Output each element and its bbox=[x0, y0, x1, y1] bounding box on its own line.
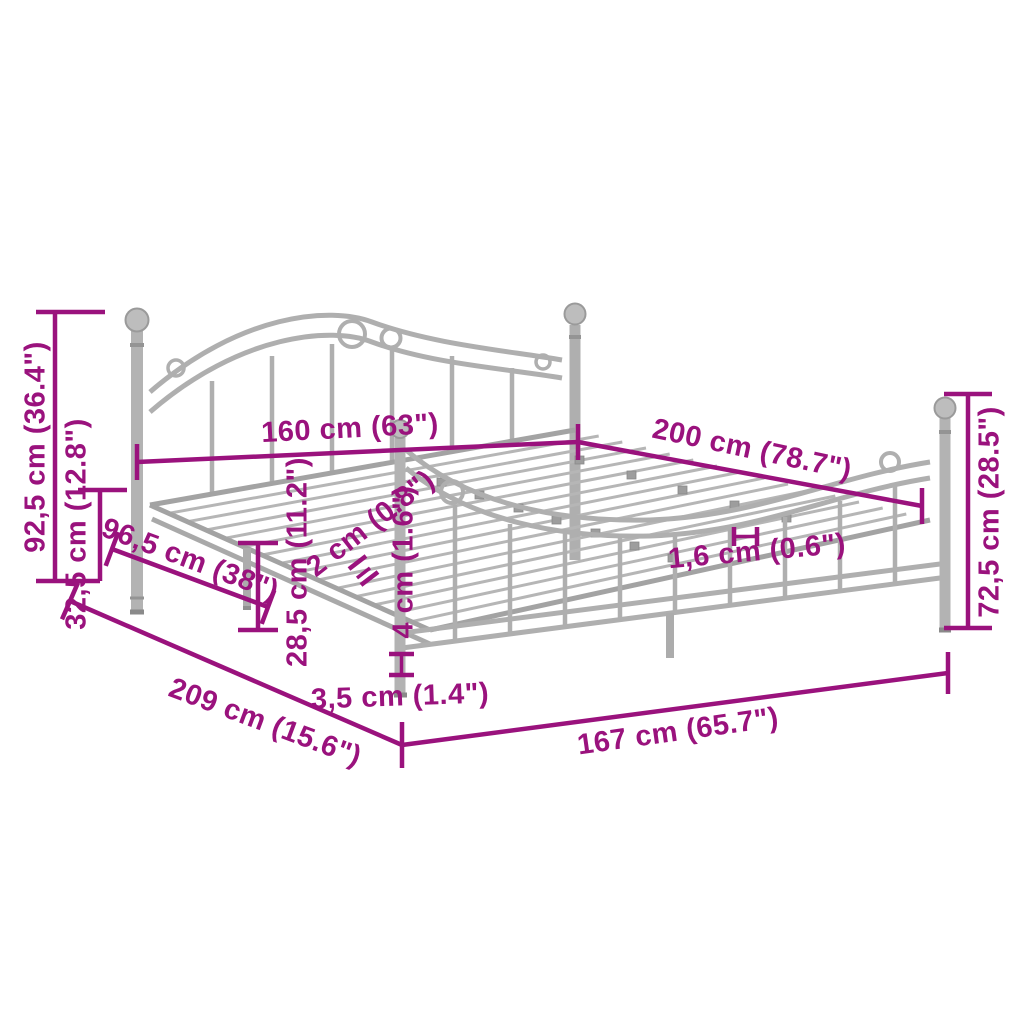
dimension-label-total-height: 92,5 cm (36.4") bbox=[20, 341, 53, 552]
dimension-label-base-height: 32,5 cm (12.8") bbox=[61, 418, 94, 629]
footboard-far-post bbox=[935, 398, 956, 631]
dimension-label-under-bed-clearance: 28,5 cm (11.2") bbox=[282, 457, 315, 667]
dimension-label-footboard-height: 72,5 cm (28.5") bbox=[974, 406, 1007, 617]
diagram-canvas: 92,5 cm (36.4") 32,5 cm (12.8") 96,5 cm … bbox=[0, 0, 1024, 1024]
bed-frame-illustration bbox=[0, 0, 1024, 1024]
dimension-label-leg-width: 3,5 cm (1.4") bbox=[310, 677, 489, 716]
dimension-label-leg-depth: 4 cm (1.6") bbox=[388, 485, 421, 638]
